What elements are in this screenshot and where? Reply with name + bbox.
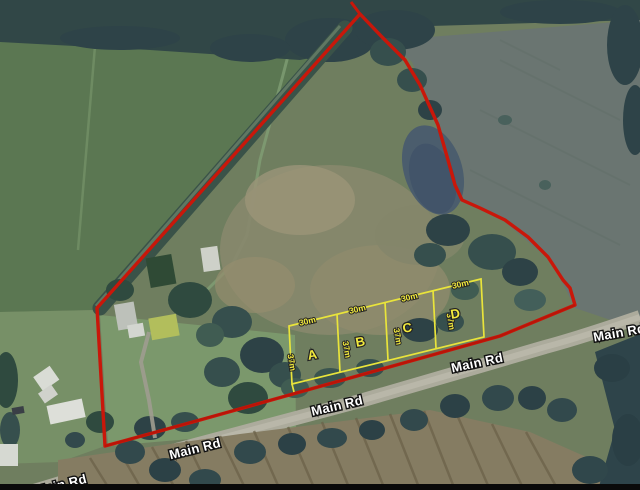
aerial-map: 30m 30m 30m 30m 37m 37m 37m 37m A B C D …	[0, 0, 640, 490]
aerial-map-screenshot: 30m 30m 30m 30m 37m 37m 37m 37m A B C D …	[0, 0, 640, 490]
bottom-black-bar	[0, 484, 640, 490]
